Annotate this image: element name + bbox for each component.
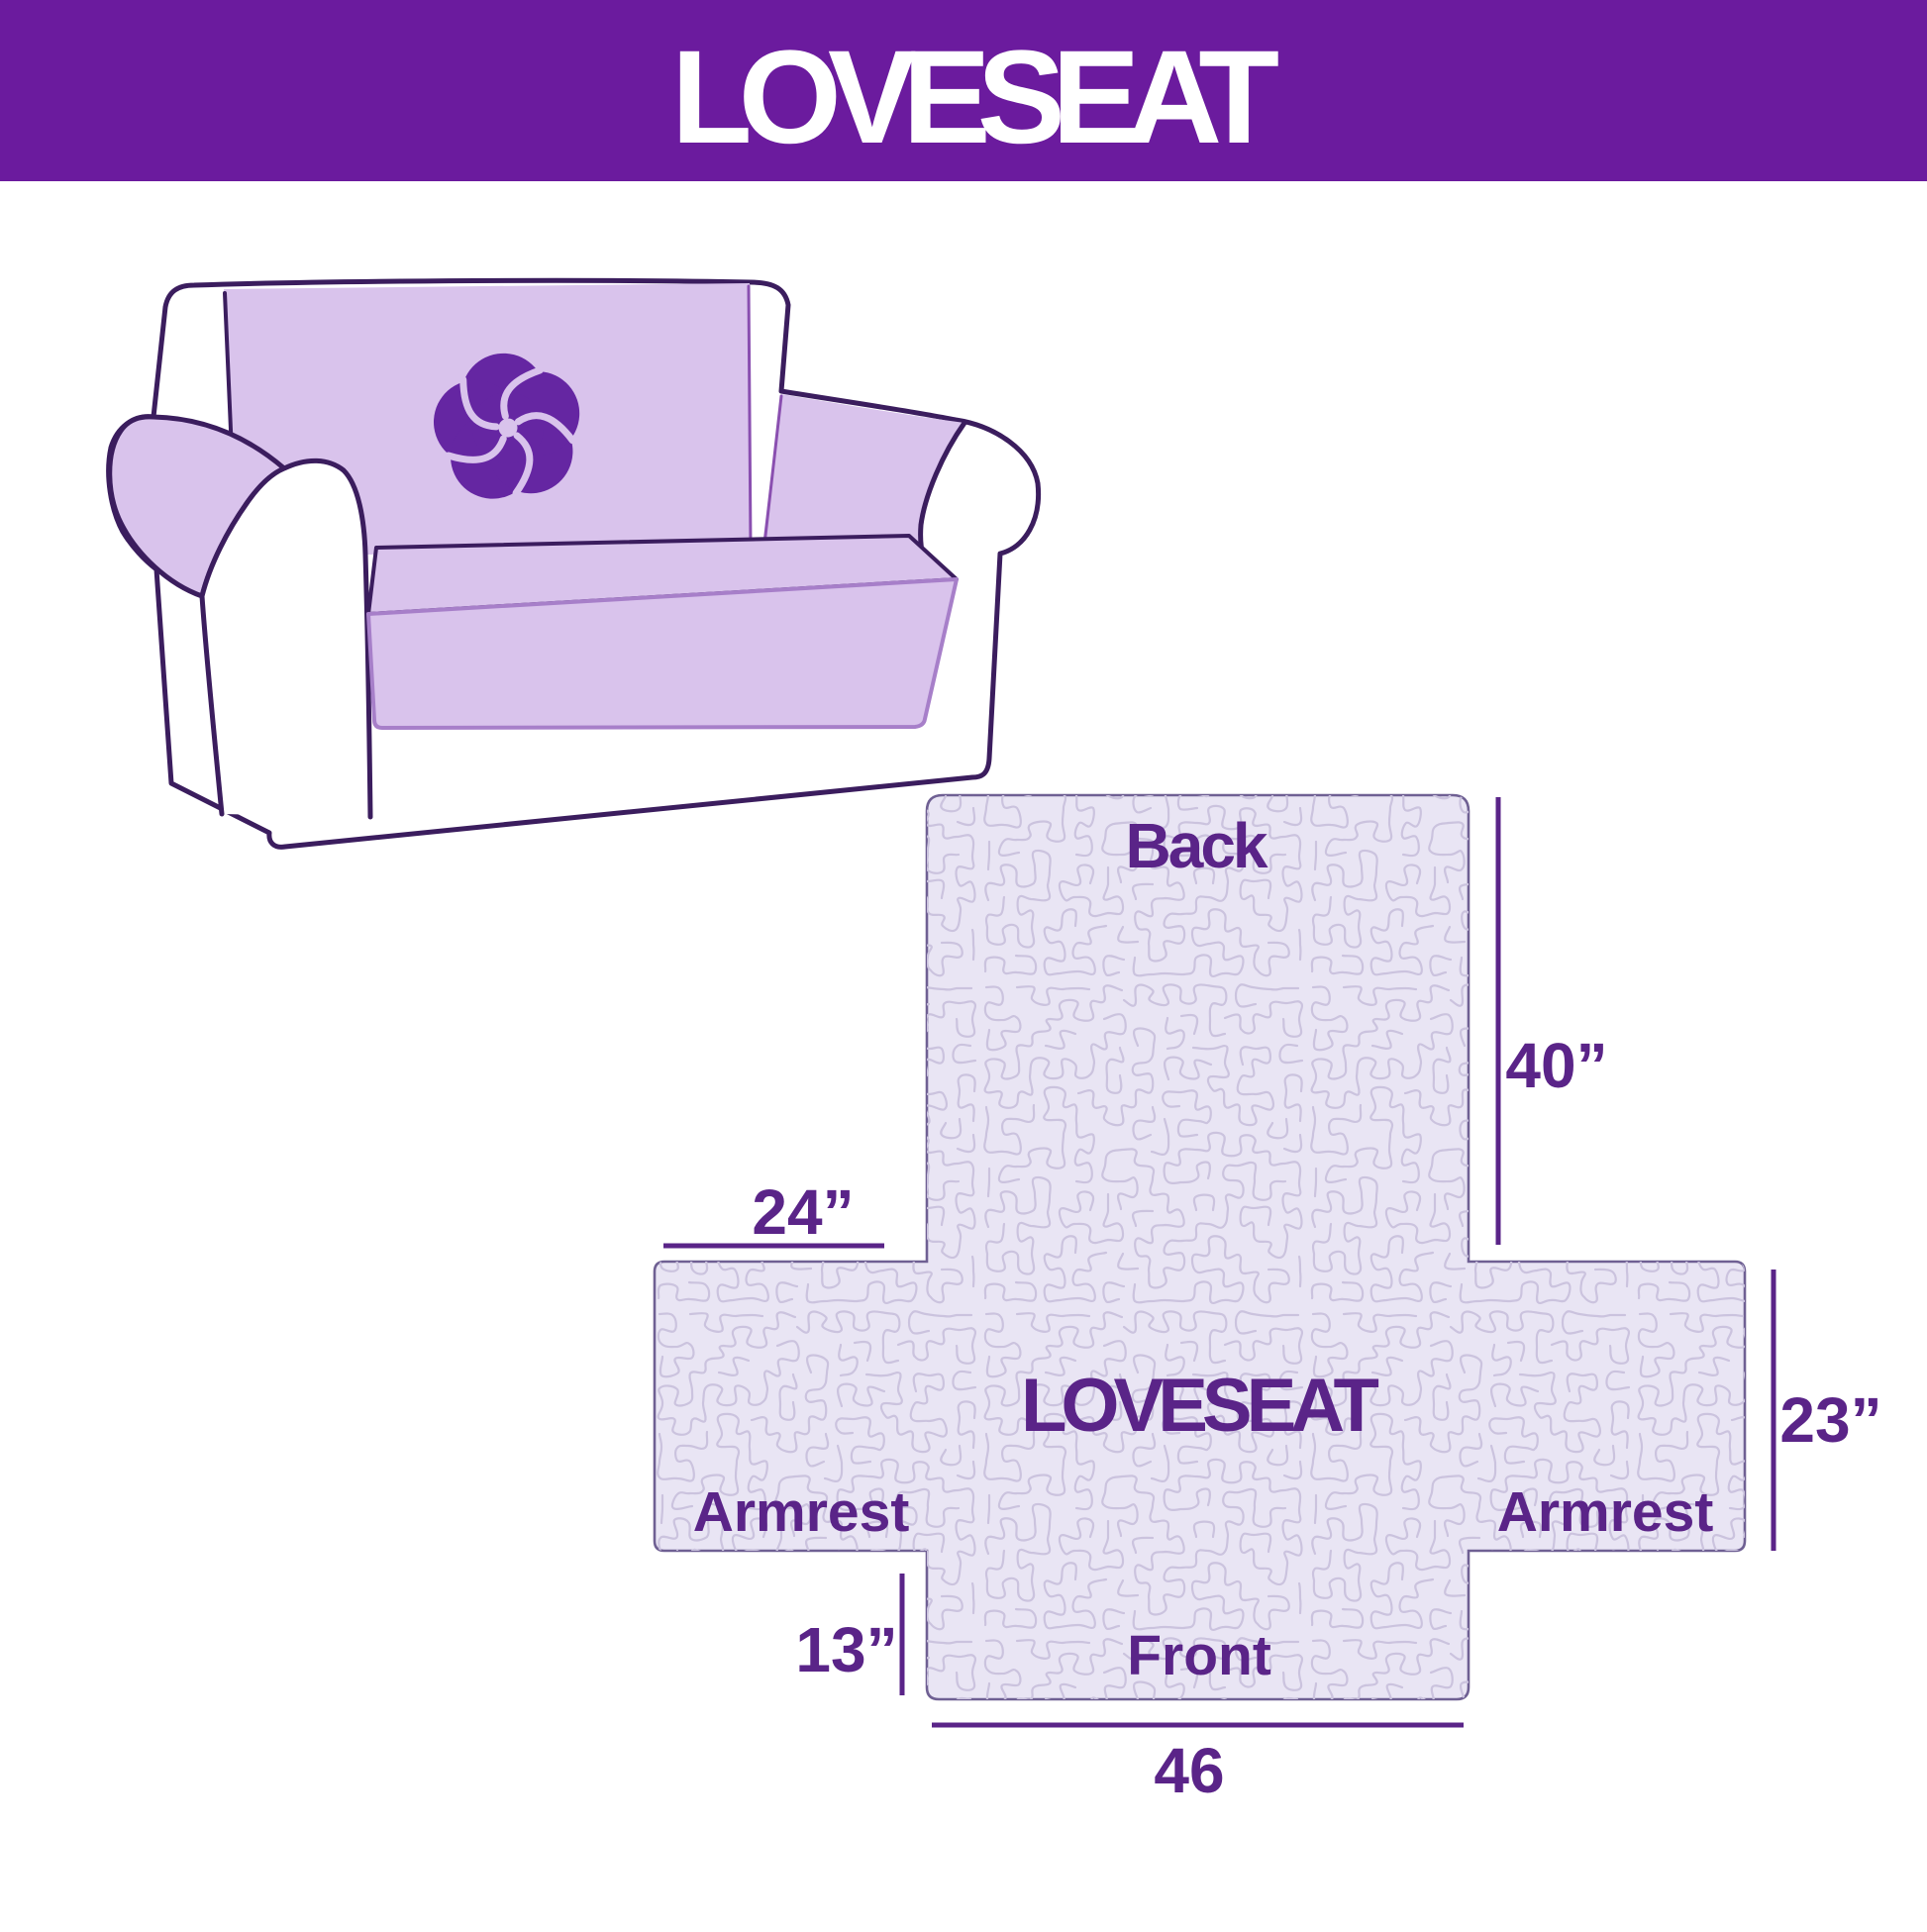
svg-text:LOVESEAT: LOVESEAT — [671, 24, 1278, 171]
svg-text:Back: Back — [1126, 810, 1268, 881]
svg-text:40”: 40” — [1505, 1030, 1607, 1101]
svg-text:Front: Front — [1127, 1624, 1271, 1687]
svg-text:13”: 13” — [795, 1614, 897, 1685]
svg-text:24”: 24” — [752, 1176, 854, 1248]
svg-text:Armrest: Armrest — [1497, 1480, 1714, 1544]
svg-text:23”: 23” — [1779, 1384, 1881, 1456]
svg-text:46: 46 — [1154, 1735, 1224, 1806]
svg-text:Armrest: Armrest — [693, 1480, 910, 1544]
svg-text:LOVESEAT: LOVESEAT — [1021, 1364, 1379, 1448]
